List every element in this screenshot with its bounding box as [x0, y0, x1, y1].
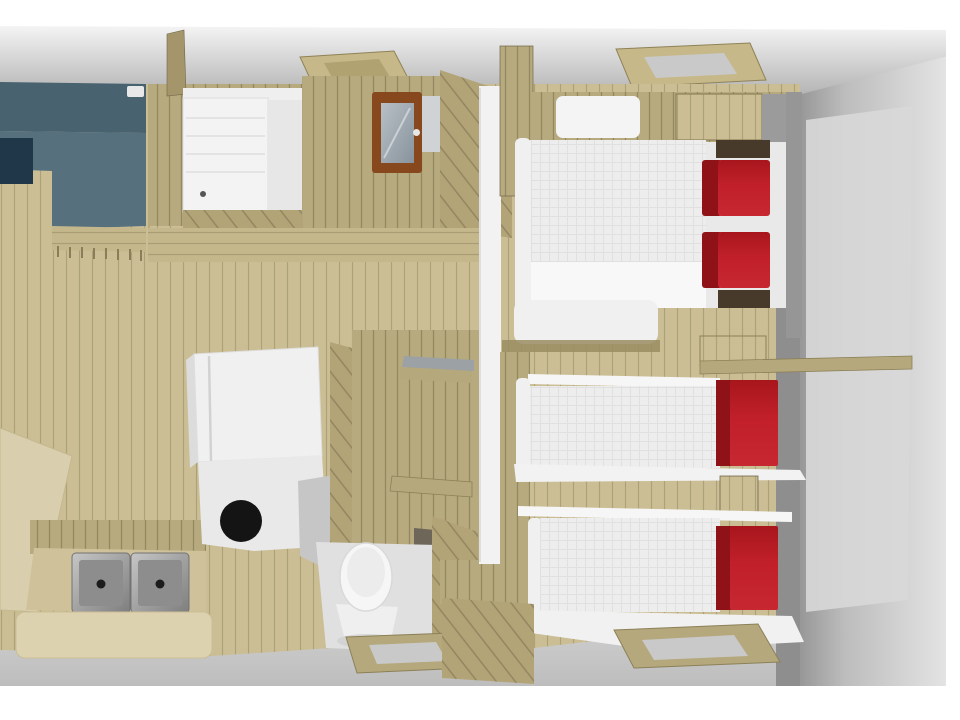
- headboard-trim-bottom: [718, 290, 770, 308]
- bed2-cushion-side: [716, 380, 732, 466]
- sofa-cushion-dark: [0, 138, 33, 184]
- floorplan-rendering: [0, 0, 960, 720]
- bed2-footboard: [516, 378, 530, 472]
- mask-bottom: [0, 686, 960, 720]
- sink-unit: [16, 520, 212, 658]
- sink-drain-left: [97, 580, 106, 589]
- bed1-cushion-1: [702, 160, 770, 216]
- mid-plank-board: [502, 340, 660, 352]
- sink-front-edge: [16, 612, 212, 658]
- cabinet-gap: [762, 94, 790, 142]
- sink-drain-right: [156, 580, 165, 589]
- bed3-footboard: [528, 518, 542, 614]
- bed1-footboard: [515, 138, 531, 312]
- roof-skylight-4: [614, 624, 780, 668]
- bottom-center-wall: [442, 598, 534, 684]
- floorplan-canvas: [0, 0, 960, 720]
- bed3-cushion-side: [716, 526, 732, 610]
- toilet-lid-inner: [347, 547, 385, 597]
- shower-drain: [200, 191, 206, 197]
- bed3-cushion-front: [730, 526, 778, 610]
- corner-post: [167, 30, 186, 96]
- sofa-back: [0, 82, 146, 133]
- fridge-front: [194, 347, 322, 462]
- bed1-cushion-2: [702, 232, 770, 288]
- bed2-mattress: [528, 386, 720, 468]
- overhead-cabinet: [676, 94, 762, 140]
- sofa-armrest: [127, 86, 144, 97]
- hob-ring: [220, 500, 262, 542]
- sofa-base: [52, 226, 146, 252]
- cushion-1-front: [718, 160, 770, 216]
- mask-top: [0, 0, 960, 26]
- mirror-knob: [413, 129, 420, 136]
- skylight-3-glass: [369, 642, 447, 664]
- cushion-2-front: [718, 232, 770, 288]
- wall-gap-gray: [786, 92, 802, 338]
- skylight-2-glass: [644, 53, 737, 78]
- mask-right: [946, 0, 960, 720]
- bed2-cushion-front: [730, 380, 778, 466]
- headboard-trim-top: [716, 140, 770, 158]
- bed3-mattress: [540, 518, 720, 612]
- shower-glass-door: [268, 100, 302, 216]
- bathroom-lower-band: [148, 228, 482, 262]
- corridor-pillar: [479, 86, 501, 564]
- roof-skylight-2: [616, 43, 766, 87]
- bed1-platform: [514, 300, 658, 344]
- pillow: [556, 96, 640, 138]
